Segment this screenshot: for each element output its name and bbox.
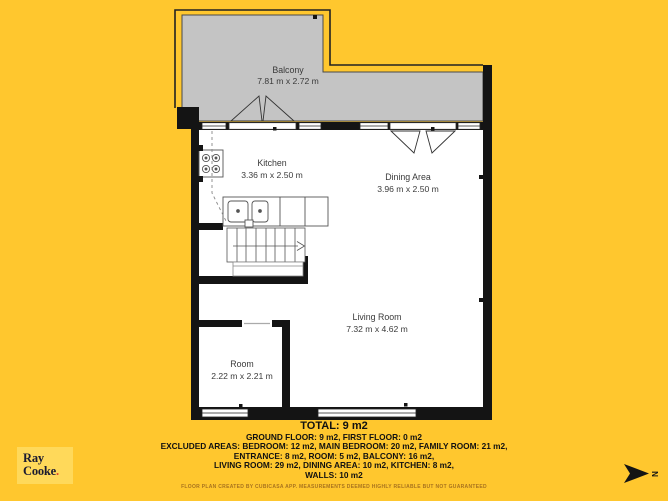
wall-tick [479,298,483,302]
stairs [227,228,305,276]
room-top-wall-left [195,320,242,327]
balcony-doorstop-mark [313,15,317,19]
disclaimer-text: FLOOR PLAN CREATED BY CUBICASA APP. MEAS… [0,484,668,490]
kitchen-wall-stub [195,223,223,230]
logo-line2: Cooke. [23,465,73,478]
room-dims: 2.22 m x 2.21 m [211,371,273,381]
window [458,123,480,130]
area-summary: TOTAL: 9 m2 GROUND FLOOR: 9 m2, FIRST FL… [0,420,668,480]
ray-cooke-logo: Ray Cooke. [17,447,73,484]
window [318,409,416,417]
balcony-floor [182,15,483,121]
window [202,409,248,417]
total-area: TOTAL: 9 m2 [0,420,668,432]
north-arrow-icon [624,464,649,483]
summary-line: WALLS: 10 m2 [0,471,668,480]
room-label: Room [230,359,253,369]
doorstop-mark [431,127,435,131]
sink-faucet [245,220,253,227]
north-label: N [650,471,659,477]
wall-tick [479,175,483,179]
dining-label: Dining Area [385,172,431,182]
doorstop-mark [404,403,408,407]
floor-plan-page: Balcony 7.81 m x 2.72 m Kitchen 3.36 m x… [0,0,668,501]
sink-counter [223,197,328,227]
window [299,123,321,130]
living-label: Living Room [353,312,402,322]
stair-bottom-wall [195,276,308,284]
window [360,123,388,130]
stair-landing [233,262,303,276]
doorstop-mark [239,404,243,408]
kitchen-label: Kitchen [257,158,286,168]
kitchen-dims: 3.36 m x 2.50 m [241,170,303,180]
logo-dot: . [56,464,59,478]
right-wall [483,65,492,420]
north-arrow: N [616,458,664,490]
room-right-wall [282,320,290,407]
living-dims: 7.32 m x 4.62 m [346,324,408,334]
left-wall [191,122,199,420]
window [202,123,226,130]
stove-wall-stub [196,176,203,182]
balcony-dims: 7.81 m x 2.72 m [257,76,319,86]
doorstop-mark [273,127,277,131]
stove [196,145,223,182]
stove-wall-stub [196,145,203,151]
balcony [175,10,483,129]
dining-dims: 3.96 m x 2.50 m [377,184,439,194]
balcony-label: Balcony [272,65,304,75]
